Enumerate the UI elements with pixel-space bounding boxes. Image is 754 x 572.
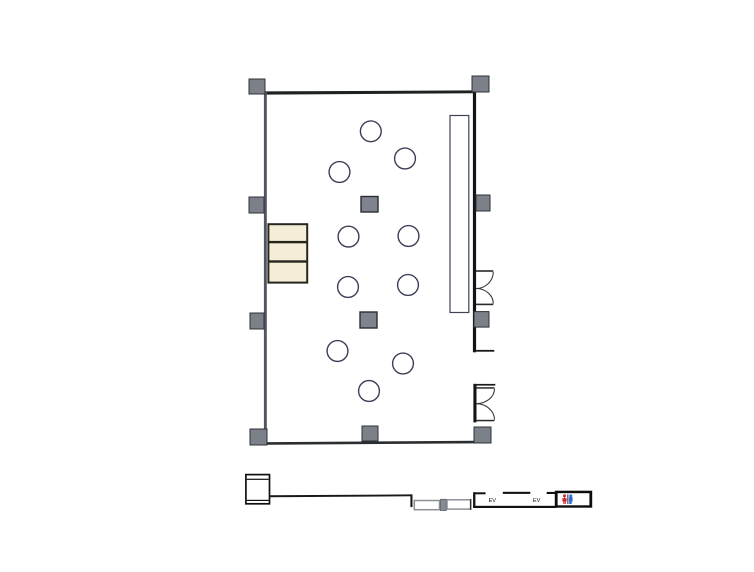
svg-text:EV: EV: [489, 498, 497, 504]
svg-text:EV: EV: [533, 498, 541, 504]
